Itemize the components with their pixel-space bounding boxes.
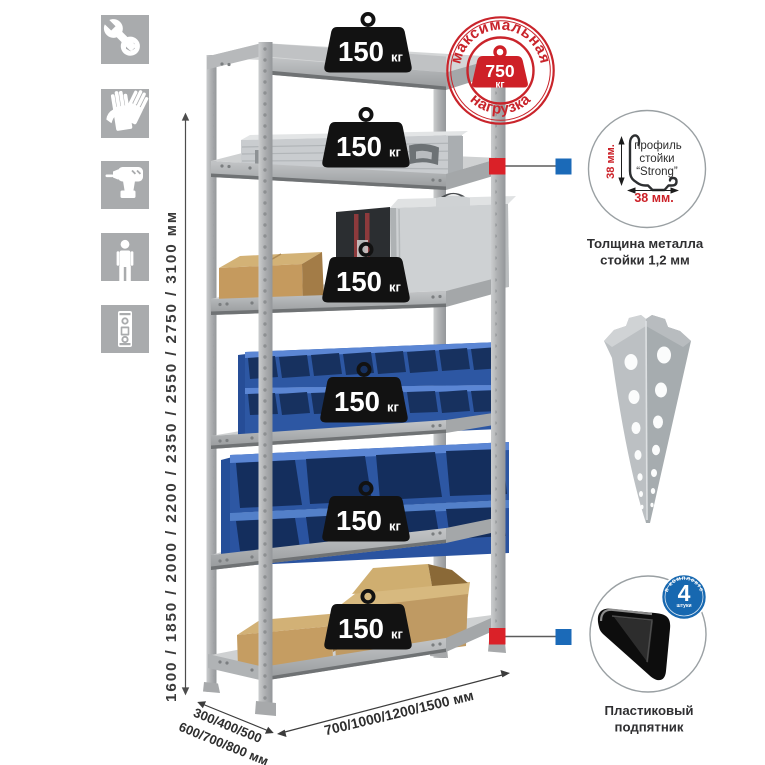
svg-text:150: 150 xyxy=(338,613,384,644)
svg-text:38 мм.: 38 мм. xyxy=(605,144,617,179)
svg-text:стойки: стойки xyxy=(639,153,674,165)
svg-text:Пластиковый: Пластиковый xyxy=(604,703,693,718)
svg-text:150: 150 xyxy=(334,386,380,417)
svg-text:штуки: штуки xyxy=(676,603,691,609)
svg-text:1600 / 1850 / 2000 / 2200 / 23: 1600 / 1850 / 2000 / 2200 / 2350 / 2550 … xyxy=(163,210,180,702)
svg-text:стойки 1,2 мм: стойки 1,2 мм xyxy=(600,253,690,268)
svg-text:кг: кг xyxy=(389,519,402,534)
svg-text:профиль: профиль xyxy=(634,140,682,152)
svg-text:кг: кг xyxy=(389,145,402,160)
svg-text:“Strong”: “Strong” xyxy=(636,166,678,178)
svg-text:кг: кг xyxy=(389,280,402,295)
svg-text:750: 750 xyxy=(485,61,514,81)
svg-text:150: 150 xyxy=(338,36,384,67)
svg-text:38 мм.: 38 мм. xyxy=(634,191,673,205)
svg-text:150: 150 xyxy=(336,266,382,297)
svg-text:кг: кг xyxy=(495,80,504,91)
svg-text:Толщина металла: Толщина металла xyxy=(587,236,704,251)
svg-text:кг: кг xyxy=(391,50,404,65)
svg-text:150: 150 xyxy=(336,131,382,162)
svg-text:кг: кг xyxy=(387,400,400,415)
svg-text:кг: кг xyxy=(391,627,404,642)
svg-text:подпятник: подпятник xyxy=(614,720,683,735)
svg-text:150: 150 xyxy=(336,505,382,536)
